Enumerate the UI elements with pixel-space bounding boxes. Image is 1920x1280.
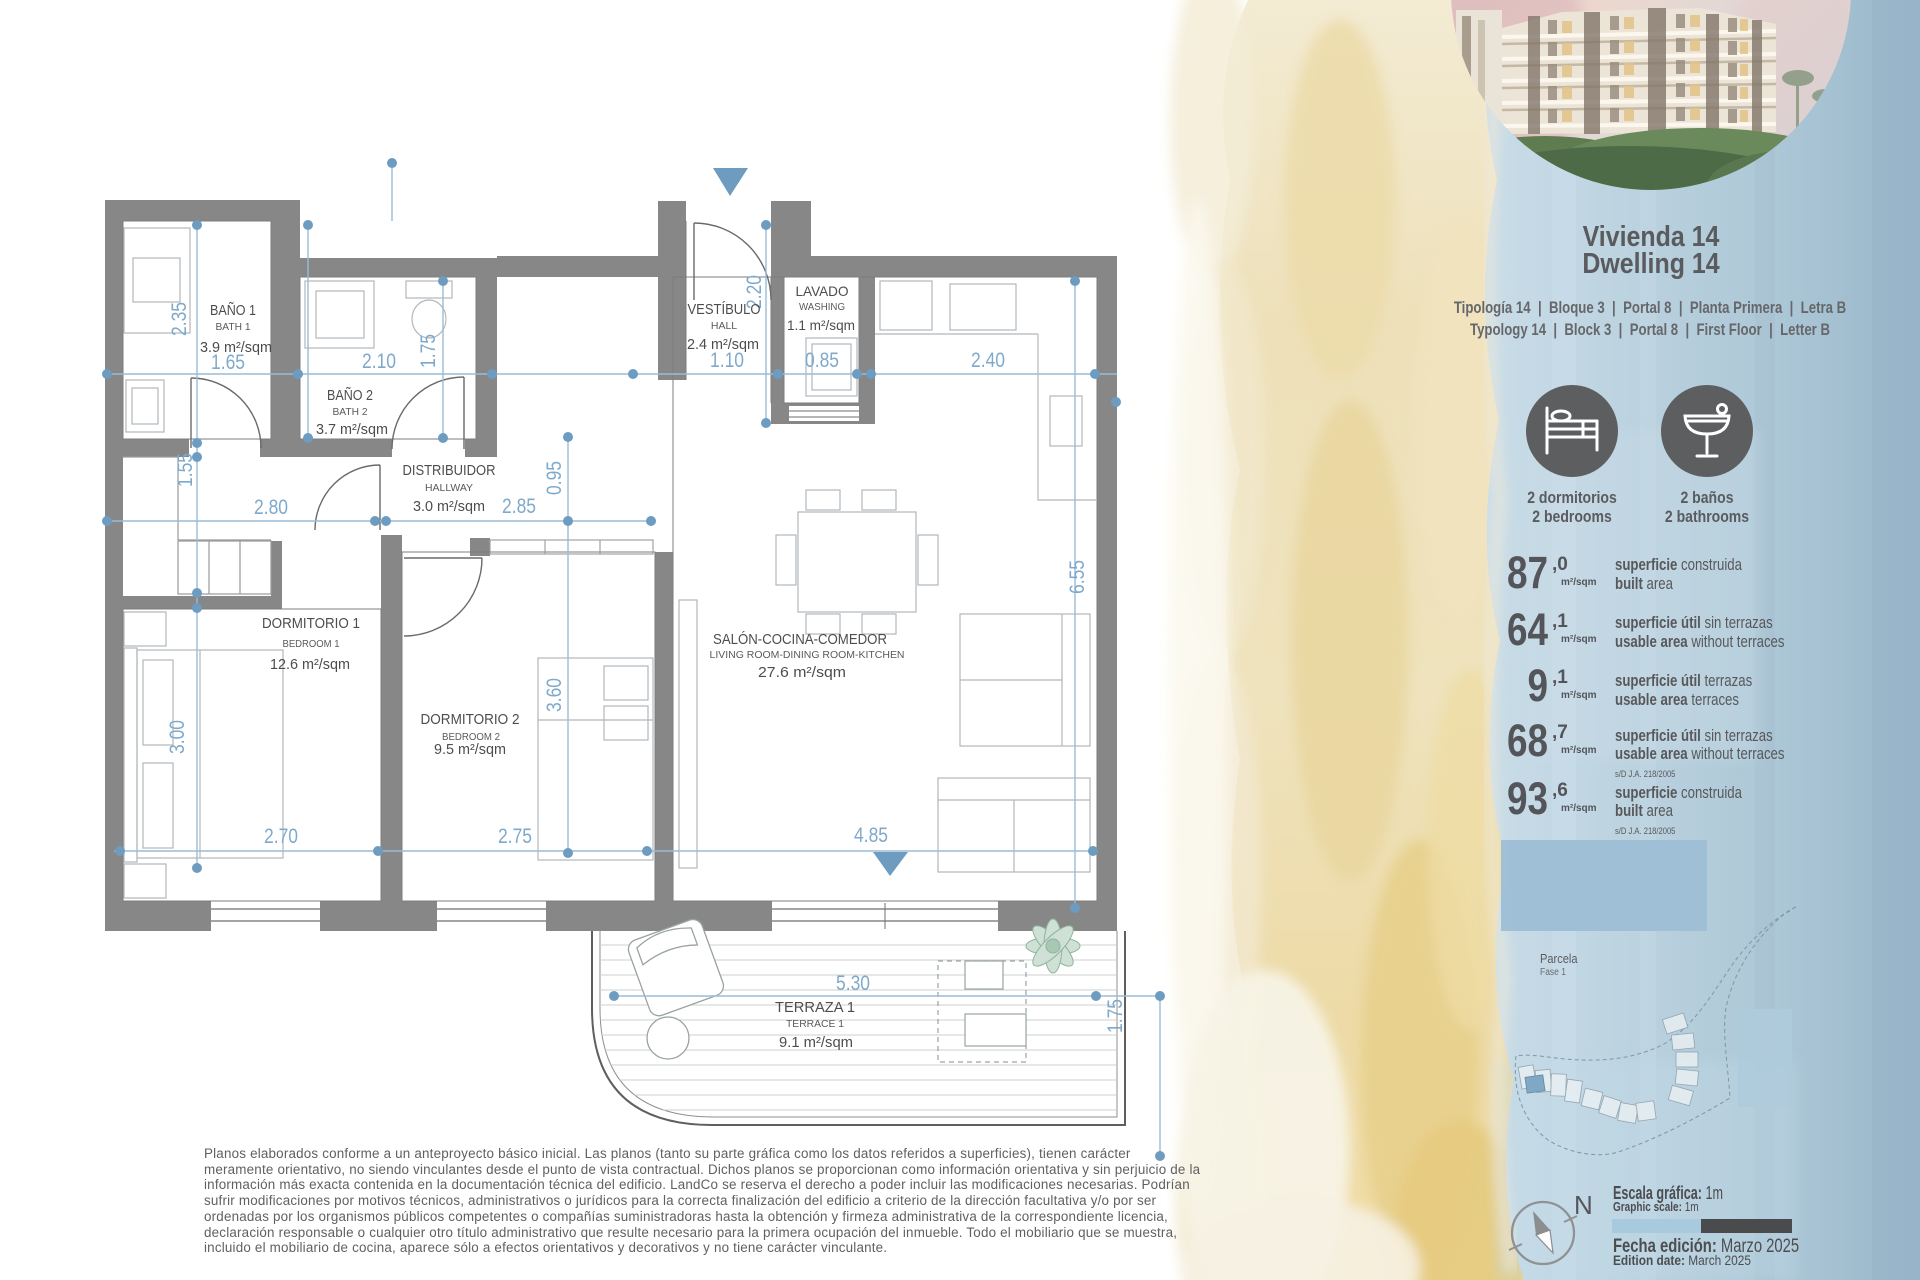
svg-text:2.35: 2.35 [168, 302, 191, 336]
svg-text:LAVADO: LAVADO [796, 283, 849, 299]
svg-text:3.0 m²/sqm: 3.0 m²/sqm [413, 499, 485, 515]
svg-text:3.7 m²/sqm: 3.7 m²/sqm [316, 422, 388, 438]
svg-text:12.6 m²/sqm: 12.6 m²/sqm [270, 657, 350, 673]
svg-text:2.10: 2.10 [362, 350, 396, 373]
svg-text:DORMITORIO 2: DORMITORIO 2 [421, 711, 520, 728]
svg-text:HALL: HALL [711, 320, 737, 332]
svg-text:HALLWAY: HALLWAY [425, 482, 473, 494]
svg-text:2.80: 2.80 [254, 496, 288, 519]
svg-text:BATH 2: BATH 2 [333, 406, 368, 418]
svg-text:BAÑO 1: BAÑO 1 [210, 302, 256, 319]
svg-text:4.85: 4.85 [854, 824, 888, 847]
svg-text:0.95: 0.95 [543, 461, 566, 495]
svg-text:6.55: 6.55 [1066, 560, 1089, 594]
svg-text:WASHING: WASHING [799, 302, 845, 313]
svg-text:3.60: 3.60 [543, 678, 566, 712]
svg-text:LIVING ROOM-DINING ROOM-KITCHE: LIVING ROOM-DINING ROOM-KITCHEN [710, 649, 905, 661]
svg-text:BAÑO 2: BAÑO 2 [327, 387, 373, 404]
svg-text:2.70: 2.70 [264, 825, 298, 848]
svg-text:1.75: 1.75 [417, 334, 440, 368]
svg-text:1.75: 1.75 [1104, 999, 1127, 1033]
svg-text:5.30: 5.30 [836, 972, 870, 995]
svg-text:DORMITORIO 1: DORMITORIO 1 [262, 615, 360, 632]
svg-text:1.1 m²/sqm: 1.1 m²/sqm [787, 318, 855, 333]
svg-text:9.1 m²/sqm: 9.1 m²/sqm [779, 1035, 853, 1051]
svg-text:27.6 m²/sqm: 27.6 m²/sqm [758, 665, 846, 681]
svg-text:3.00: 3.00 [166, 720, 189, 754]
svg-text:2.40: 2.40 [971, 349, 1005, 372]
svg-text:BEDROOM 1: BEDROOM 1 [283, 638, 340, 650]
svg-text:DISTRIBUIDOR: DISTRIBUIDOR [403, 462, 496, 479]
svg-text:TERRACE 1: TERRACE 1 [786, 1018, 844, 1030]
svg-text:BATH 1: BATH 1 [216, 321, 251, 333]
svg-text:TERRAZA 1: TERRAZA 1 [775, 999, 855, 1016]
svg-text:0.85: 0.85 [805, 349, 839, 372]
svg-text:3.9 m²/sqm: 3.9 m²/sqm [200, 340, 272, 356]
svg-text:2.4 m²/sqm: 2.4 m²/sqm [687, 337, 759, 353]
svg-text:1.55: 1.55 [174, 453, 197, 487]
svg-text:9.5 m²/sqm: 9.5 m²/sqm [434, 742, 506, 758]
svg-text:VESTÍBULO: VESTÍBULO [688, 301, 761, 318]
svg-text:2.85: 2.85 [502, 495, 536, 518]
svg-text:2.75: 2.75 [498, 825, 532, 848]
svg-text:SALÓN-COCINA-COMEDOR: SALÓN-COCINA-COMEDOR [713, 631, 887, 648]
